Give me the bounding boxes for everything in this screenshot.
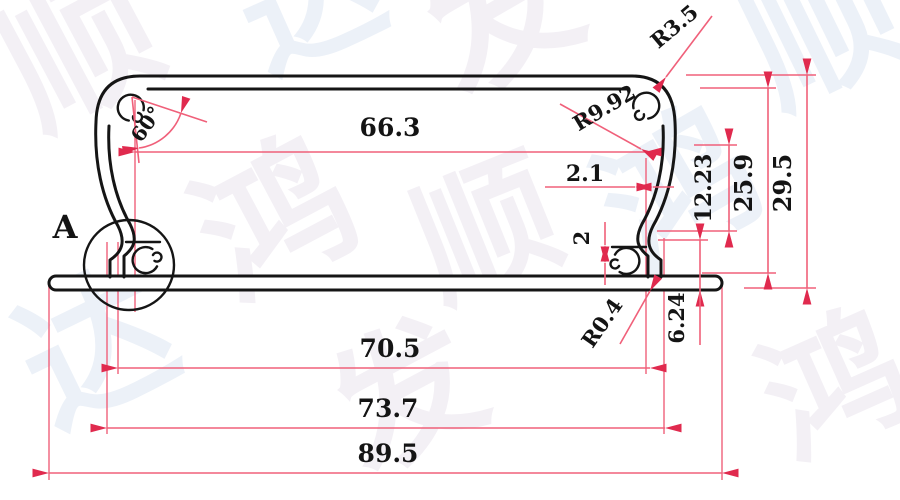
dim-label-inner-top-width: 66.3 [360,113,421,142]
detail-view-label: A [52,208,79,246]
dim-label-base-edge-height: 6.24 [664,292,689,343]
dim-label-base-inner-width: 70.5 [360,334,421,363]
dim-label-side-recess-height: 12.23 [691,154,717,223]
dim-label-overall-width: 89.5 [358,439,419,468]
dim-label-wall-thickness: 2.1 [566,161,604,187]
watermark-text: 顺 [0,0,188,162]
dim-label-corner-radius: R3.5 [645,0,702,53]
dim-label-overall-height: 29.5 [768,154,797,212]
technical-drawing-canvas: 顺 达 发 顺 鸿 顺 鸿 达 发 鸿 [0,0,900,500]
dim-label-base-outer-width: 73.7 [358,394,419,423]
dim-label-inner-height: 25.9 [729,154,758,212]
extrusion-profile-drawing: 顺 达 发 顺 鸿 顺 鸿 达 发 鸿 [0,0,900,500]
watermark-text: 鸿 [169,108,383,332]
dim-label-base-step: 2 [569,231,594,246]
profile-base-plate [49,276,722,290]
watermark-text: 鸿 [739,284,900,490]
watermark-text: 顺 [717,0,900,140]
